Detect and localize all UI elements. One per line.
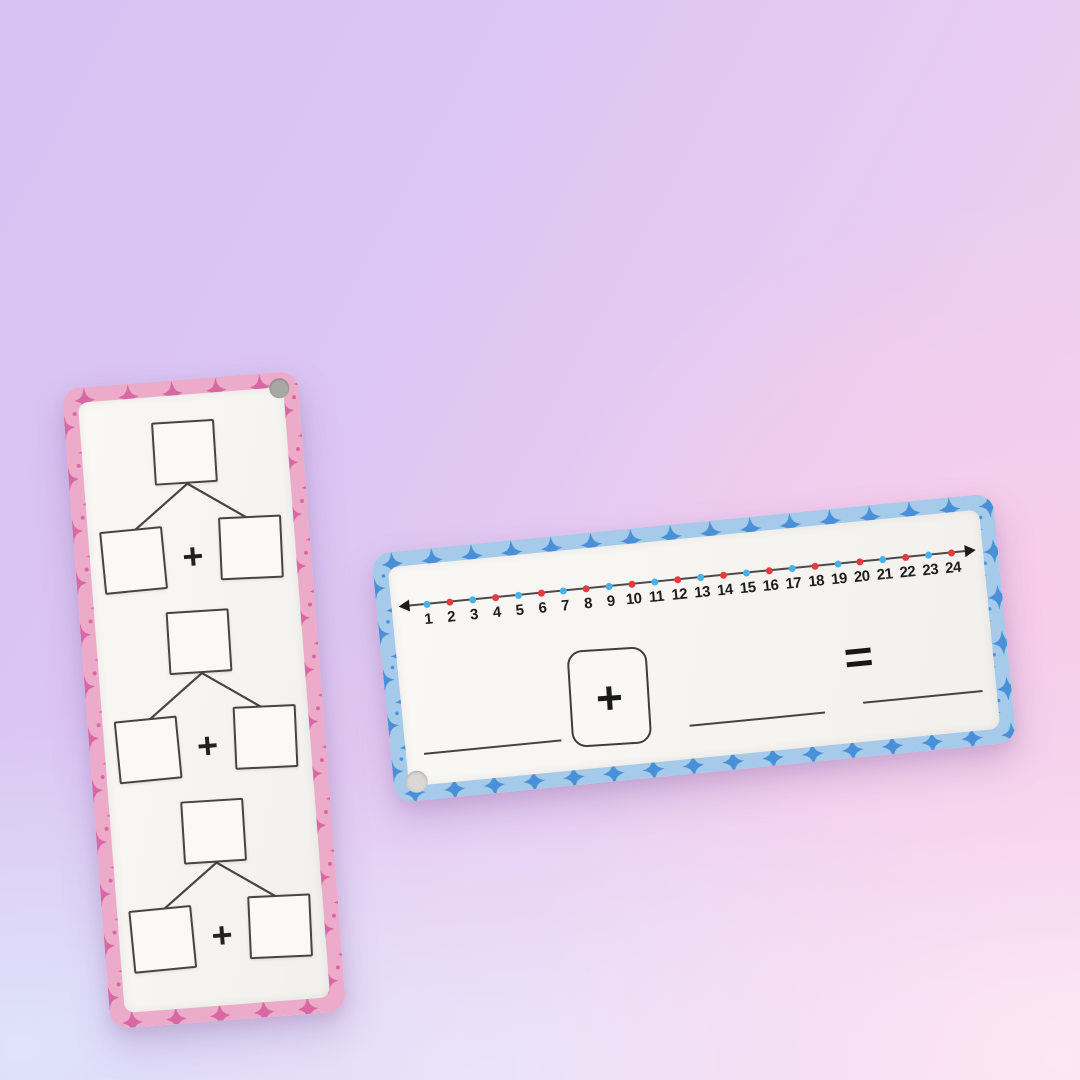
numberline-number: 15 — [739, 579, 756, 595]
answer-blank-sum — [863, 690, 983, 704]
numberline-number: 23 — [922, 561, 939, 577]
answer-blank-second-addend — [689, 712, 825, 727]
photo-backdrop: + + + — [0, 0, 1080, 1080]
equals-sign: = — [833, 632, 885, 682]
numberline-number: 11 — [648, 588, 664, 604]
numberline-dot — [514, 591, 522, 599]
numberline-number: 4 — [492, 604, 501, 620]
numberline-dot — [856, 558, 864, 566]
number-bond-3: + — [121, 793, 316, 984]
numberline-number: 22 — [899, 564, 916, 580]
numberline-number: 10 — [625, 590, 642, 606]
numberline-dot — [583, 584, 591, 592]
numberline-number: 20 — [853, 568, 870, 584]
numberline-number: 18 — [808, 573, 825, 589]
numberline-number: 13 — [694, 584, 711, 600]
number-bond-2: + — [106, 603, 301, 794]
numberline-dot — [560, 587, 568, 595]
numberline-dot — [788, 564, 796, 572]
numberline-number: 24 — [944, 559, 961, 575]
numberline-dot — [537, 589, 545, 597]
numberline-number: 16 — [762, 577, 779, 593]
numberline-number: 12 — [671, 586, 688, 602]
numberline-number: 14 — [716, 581, 733, 597]
numberline-dot — [879, 555, 887, 563]
numberline-dot — [628, 580, 636, 588]
numberline-number: 19 — [830, 570, 847, 586]
numberline-number: 9 — [606, 593, 615, 609]
answer-blank-first-addend — [424, 739, 562, 754]
bond-whole-box — [151, 419, 218, 486]
bond-whole-box — [166, 608, 233, 675]
numberline-number: 21 — [876, 566, 893, 582]
numberline-dot — [697, 573, 705, 581]
numberline-dot — [469, 596, 477, 604]
numberline-dot — [446, 598, 454, 606]
numberline-dot — [491, 593, 499, 601]
bond-whole-box — [180, 798, 247, 865]
numberline-dot — [834, 560, 842, 568]
number-bond-1: + — [92, 414, 287, 605]
numberline-dot — [720, 571, 728, 579]
numberline-number: 8 — [583, 595, 592, 611]
numberline-dot — [423, 600, 431, 608]
plus-operator-box: + — [566, 646, 652, 748]
numberline-dot — [902, 553, 910, 561]
numberline-dot — [811, 562, 819, 570]
numberline-arrowhead-left-icon — [398, 600, 410, 613]
numberline-number: 1 — [424, 611, 433, 627]
plus-sign: + — [595, 673, 625, 721]
number-bond-card: + + + — [62, 371, 347, 1029]
numberline-dot — [674, 575, 682, 583]
numberline-dot — [651, 578, 659, 586]
numberline-number: 17 — [785, 575, 802, 591]
numberline-dot — [742, 569, 750, 577]
numberline-number: 7 — [561, 598, 570, 614]
numberline-arrowhead-right-icon — [964, 544, 976, 557]
numberline-dot — [606, 582, 614, 590]
numberline-tick-24: 24 — [939, 537, 965, 576]
numberline-dot — [765, 566, 773, 574]
numberline-dot — [948, 549, 956, 557]
numberline-dot — [925, 551, 933, 559]
number-line-card: 123456789101112131415161718192021222324 … — [371, 493, 1016, 803]
numberline-number: 6 — [538, 600, 547, 616]
numberline-number: 5 — [515, 602, 524, 618]
numberline-number: 2 — [447, 609, 456, 625]
numberline-number: 3 — [469, 606, 478, 622]
